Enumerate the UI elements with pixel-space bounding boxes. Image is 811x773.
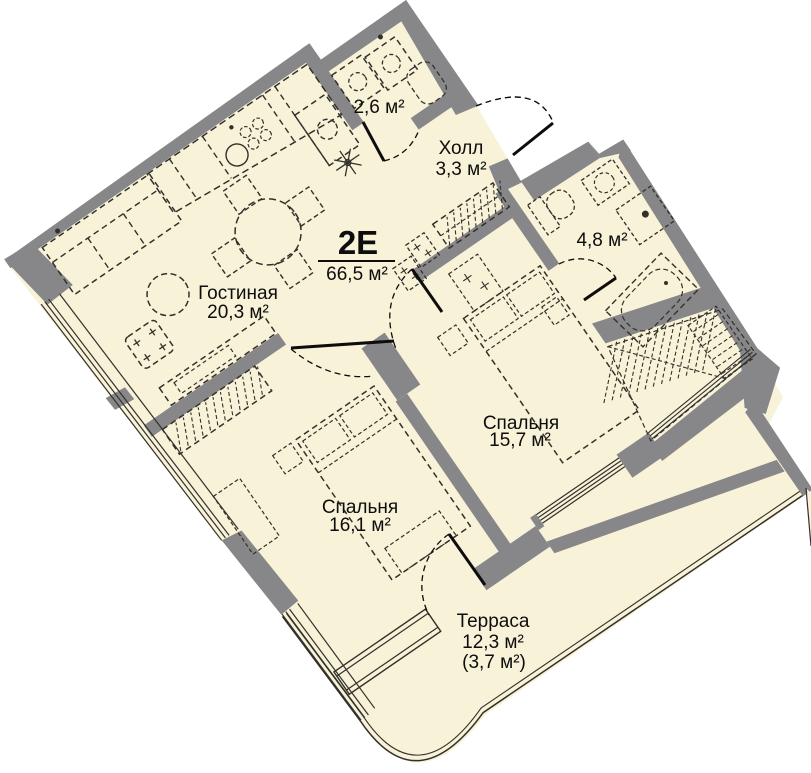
svg-text:Терраса: Терраса [457,611,530,632]
svg-text:Холл: Холл [439,138,484,159]
svg-text:2E: 2E [338,224,378,261]
svg-text:66,5 м²: 66,5 м² [326,264,388,285]
svg-text:2,6 м²: 2,6 м² [353,97,404,118]
svg-text:16,1 м²: 16,1 м² [329,515,391,536]
svg-text:15,7 м²: 15,7 м² [489,430,551,451]
svg-text:20,3 м²: 20,3 м² [207,302,269,323]
svg-text:(3,7 м²): (3,7 м²) [462,652,526,673]
svg-text:4,8 м²: 4,8 м² [576,230,627,251]
svg-text:12,3 м²: 12,3 м² [462,632,524,653]
svg-text:3,3 м²: 3,3 м² [435,159,486,180]
svg-text:Гостиная: Гостиная [198,283,278,304]
